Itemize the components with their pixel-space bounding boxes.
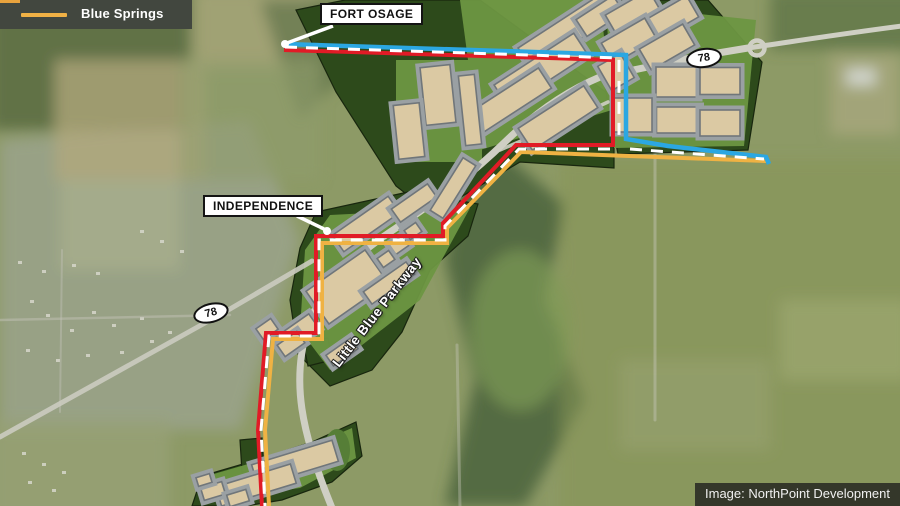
house-speckle [18, 261, 22, 264]
house-speckle [180, 250, 184, 253]
warehouse-building [657, 107, 700, 133]
fort-osage-callout: FORT OSAGE [320, 3, 423, 25]
warehouse-building [700, 68, 740, 95]
legend-item-label: Blue Springs [81, 7, 164, 22]
house-speckle [46, 314, 50, 317]
fort-osage-pointer-dot [281, 40, 289, 48]
house-speckle [150, 340, 154, 343]
map-graphic [0, 0, 900, 506]
cropped-logo-fragment [0, 0, 20, 3]
house-speckle [160, 240, 164, 243]
house-speckle [112, 324, 116, 327]
house-speckle [22, 452, 26, 455]
house-speckle [72, 264, 76, 267]
warehouse-building [393, 103, 425, 159]
house-speckle [56, 359, 60, 362]
house-speckle [168, 331, 172, 334]
house-speckle [42, 270, 46, 273]
house-speckle [70, 329, 74, 332]
house-speckle [96, 272, 100, 275]
independence-callout: INDEPENDENCE [203, 195, 323, 217]
house-speckle [62, 471, 66, 474]
legend-line-swatch [21, 12, 71, 18]
house-speckle [120, 351, 124, 354]
house-speckle [26, 349, 30, 352]
house-speckle [52, 489, 56, 492]
house-speckle [30, 300, 34, 303]
map-legend: Blue Springs [0, 0, 192, 29]
warehouse-building [656, 67, 698, 97]
warehouse-building [700, 110, 740, 136]
house-speckle [140, 230, 144, 233]
warehouse-building [420, 65, 456, 126]
image-credit: Image: NorthPoint Development [695, 483, 900, 506]
house-speckle [28, 481, 32, 484]
independence-pointer-dot [323, 227, 331, 235]
aerial-development-map: Blue Springs FORT OSAGE INDEPENDENCE 78 … [0, 0, 900, 506]
house-speckle [92, 311, 96, 314]
house-speckle [42, 463, 46, 466]
house-speckle [86, 354, 90, 357]
